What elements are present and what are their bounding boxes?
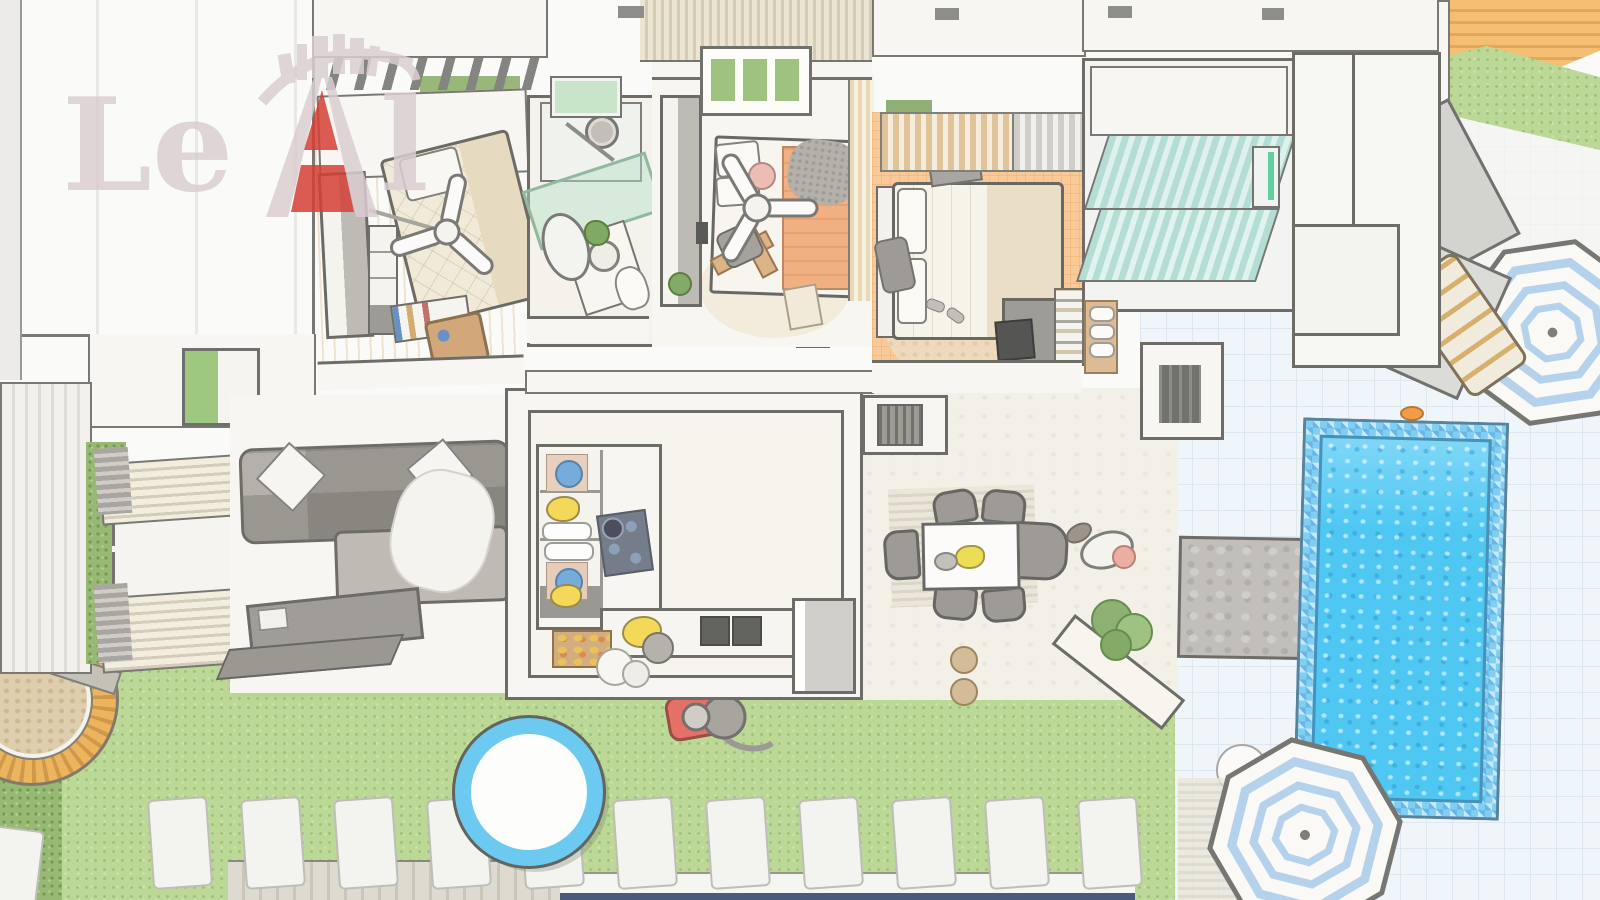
paper-roll	[544, 542, 594, 561]
bedroom2-curtain-right	[848, 75, 874, 301]
roof-vent	[1108, 6, 1132, 18]
console-remote	[257, 606, 289, 631]
paper-roll	[542, 522, 592, 541]
corridor-plant	[668, 272, 692, 296]
fruit-on-table	[955, 545, 985, 569]
cooktop	[596, 509, 654, 577]
blue-bowl	[555, 460, 583, 488]
louver-shade	[94, 447, 133, 515]
sink-basin	[732, 616, 762, 646]
stepping-stone	[891, 796, 957, 890]
garage-window	[1252, 146, 1280, 208]
garden-stool	[950, 678, 978, 706]
stepping-stone	[798, 796, 864, 890]
cooktop-knob	[600, 516, 625, 541]
window-pane-green	[775, 59, 799, 101]
rolled-towel	[1089, 324, 1115, 340]
burner	[625, 520, 637, 532]
fridge	[792, 598, 856, 694]
stepping-stone	[147, 796, 213, 890]
ac-niche	[862, 395, 948, 455]
rolled-towel	[1089, 342, 1115, 358]
stepping-stone	[333, 796, 399, 890]
garage-top-band	[1090, 66, 1288, 136]
burner	[608, 543, 620, 555]
shelf-cubby-bowl	[546, 454, 588, 492]
roof-vent	[618, 6, 644, 18]
bath-skylight	[552, 78, 620, 116]
master-bottom-wall	[872, 360, 1082, 393]
stepping-stone	[612, 796, 678, 890]
stepping-stone	[984, 796, 1050, 890]
garden-stool	[950, 646, 978, 674]
rolled-towel	[1089, 306, 1115, 322]
niche-window	[1159, 365, 1201, 423]
neighbor-roof-edge	[0, 0, 22, 380]
master-hedge-sliver	[886, 100, 932, 112]
master-curtain-tan	[880, 112, 1016, 172]
roof-band	[872, 0, 1086, 57]
window-green-stripe	[1268, 152, 1274, 200]
nightstand-item	[436, 329, 450, 343]
burner	[630, 552, 642, 564]
stepping-stone	[1077, 796, 1143, 890]
right-wing-closet	[1292, 224, 1400, 336]
logo-text-l: l	[380, 82, 429, 210]
kitchen-sink	[700, 612, 762, 648]
patio-umbrella-bottom	[1192, 722, 1418, 900]
stone-pad	[1177, 536, 1317, 660]
kettle	[642, 632, 674, 664]
bedroom2-window-band	[700, 46, 812, 116]
person-walking	[1062, 515, 1147, 577]
tv-screen	[994, 318, 1035, 361]
rubber-duck	[550, 584, 582, 608]
bath-plant	[584, 220, 610, 246]
ac-grill	[877, 404, 923, 446]
right-wing-wall	[1352, 52, 1355, 224]
glass-roof-lower	[1076, 208, 1280, 282]
book-shelf	[1054, 288, 1084, 364]
utility-niche	[1140, 342, 1224, 440]
dining-chair	[981, 586, 1028, 624]
bedroom1-bottom-wall	[318, 354, 525, 390]
master-curtain-gray	[1012, 112, 1084, 172]
roof-vent	[935, 8, 959, 20]
stepping-stone	[240, 796, 306, 890]
corridor-wall-long	[525, 370, 874, 394]
rubber-duck	[546, 496, 580, 522]
watermark-logo: Le l	[62, 42, 402, 242]
dining-chair	[882, 529, 921, 581]
louver-shade	[93, 583, 132, 663]
west-siding	[0, 382, 92, 674]
sink-basin	[700, 616, 730, 646]
bathroom-bottom-wall	[527, 316, 649, 343]
navy-edge-strip	[560, 893, 1135, 900]
kiddie-pool	[455, 718, 603, 866]
window-pane-green	[711, 59, 735, 101]
window-pane-green	[743, 59, 767, 101]
plate-stack	[622, 660, 650, 688]
floorplan-render: Le l	[0, 0, 1600, 900]
foot-towel	[783, 283, 824, 330]
shrub	[1082, 590, 1172, 670]
roof-band	[1082, 0, 1439, 52]
stepping-stone	[705, 796, 771, 890]
bowl-on-table	[934, 552, 958, 571]
towel-shelf	[1084, 300, 1118, 374]
ceiling-fan	[697, 148, 817, 268]
roof-vent	[1262, 8, 1284, 20]
deck-dot-orange	[1400, 406, 1424, 421]
